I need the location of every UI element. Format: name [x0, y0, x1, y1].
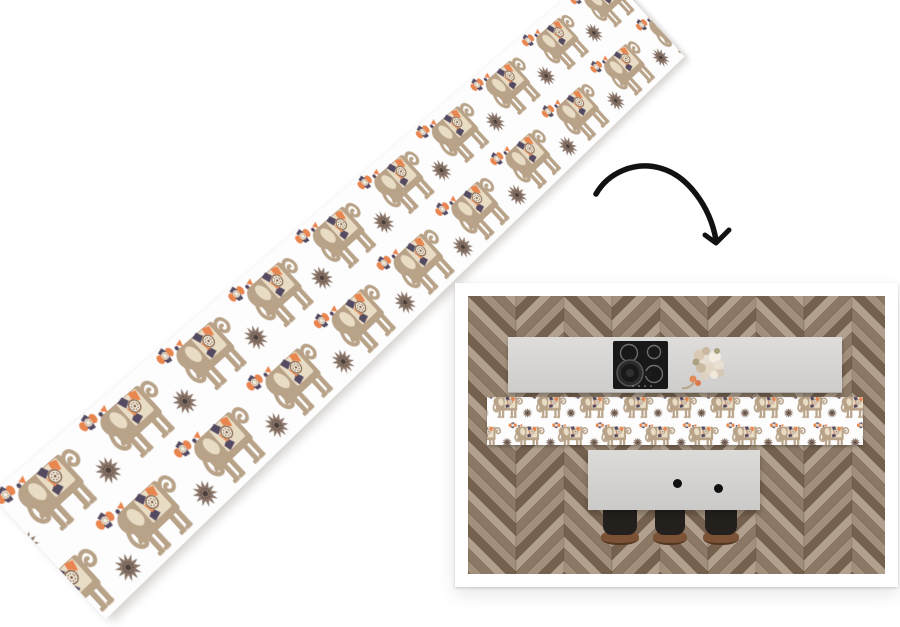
kitchen-counter — [508, 337, 842, 393]
cooktop — [613, 341, 668, 389]
orange-petal — [695, 380, 701, 386]
island-bowl — [714, 484, 723, 493]
kitchen-photo — [455, 283, 898, 587]
stool — [655, 505, 685, 545]
arrow-annotation-icon — [582, 148, 738, 258]
kitchen-floor — [468, 296, 885, 574]
kitchen-island — [588, 450, 760, 510]
runner-pattern-surface-small — [487, 397, 863, 445]
stool — [705, 505, 737, 545]
island-bowl — [673, 479, 682, 488]
flower-bouquet — [676, 343, 736, 391]
runner-mat-in-room — [487, 397, 863, 445]
stool — [603, 505, 637, 545]
